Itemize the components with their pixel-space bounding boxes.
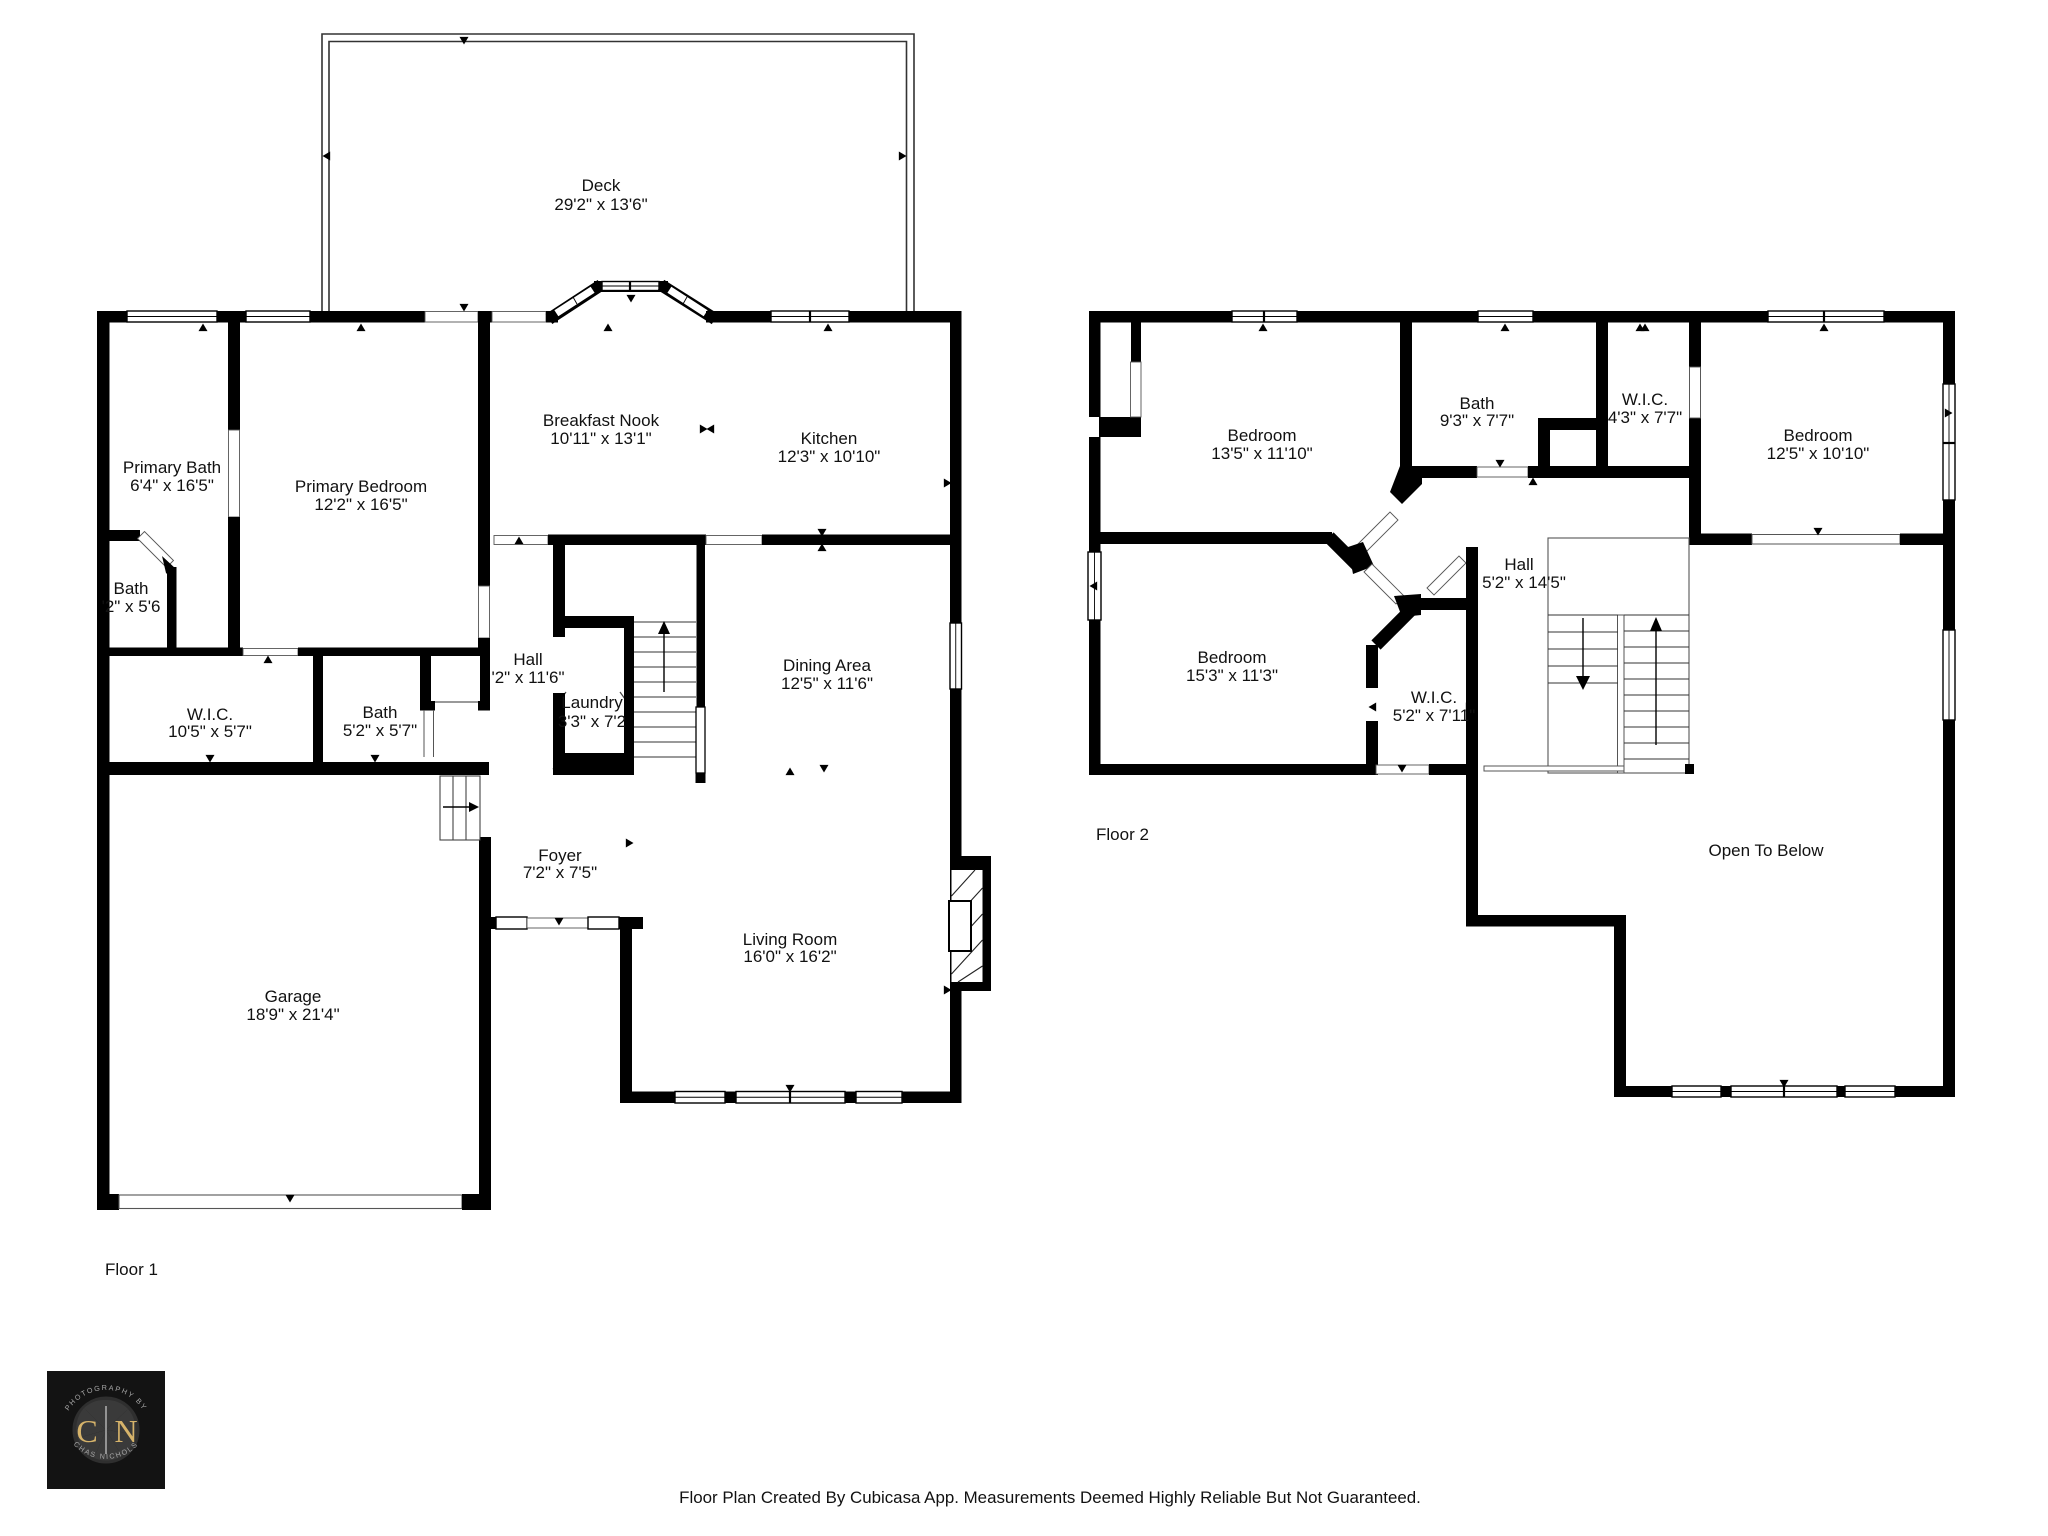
svg-text:W.I.C.: W.I.C. — [1622, 390, 1668, 409]
svg-text:Primary Bath: Primary Bath — [123, 458, 221, 477]
svg-text:12'2" x 16'5": 12'2" x 16'5" — [314, 495, 407, 514]
svg-text:Hall: Hall — [513, 650, 542, 669]
svg-text:4'3" x 7'7": 4'3" x 7'7" — [1608, 408, 1682, 427]
svg-text:9'3" x 7'7": 9'3" x 7'7" — [1440, 411, 1514, 430]
svg-text:Hall: Hall — [1504, 555, 1533, 574]
svg-text:Floor Plan Created By Cubicasa: Floor Plan Created By Cubicasa App. Meas… — [679, 1488, 1421, 1507]
svg-text:Bath: Bath — [363, 703, 398, 722]
svg-text:7'2" x 7'5": 7'2" x 7'5" — [523, 863, 597, 882]
svg-text:5'2" x 5'7": 5'2" x 5'7" — [343, 721, 417, 740]
svg-text:Bedroom: Bedroom — [1228, 426, 1297, 445]
svg-text:Floor 1: Floor 1 — [105, 1260, 158, 1279]
svg-text:Dining Area: Dining Area — [783, 656, 871, 675]
svg-text:12'5" x 11'6": 12'5" x 11'6" — [781, 674, 873, 693]
svg-text:Kitchen: Kitchen — [801, 429, 858, 448]
svg-text:10'11" x 13'1": 10'11" x 13'1" — [550, 429, 651, 448]
svg-text:13'5" x 11'10": 13'5" x 11'10" — [1211, 444, 1312, 463]
svg-text:Laundry: Laundry — [561, 693, 623, 712]
svg-text:10'5" x 5'7": 10'5" x 5'7" — [168, 722, 252, 741]
svg-text:12'3" x 10'10": 12'3" x 10'10" — [778, 447, 881, 466]
svg-text:Bedroom: Bedroom — [1784, 426, 1853, 445]
svg-text:Deck: Deck — [582, 176, 621, 195]
svg-text:5'2" x 7'11": 5'2" x 7'11" — [1393, 706, 1476, 725]
svg-text:Bath: Bath — [114, 579, 149, 598]
svg-text:Open To Below: Open To Below — [1709, 841, 1825, 860]
svg-text:Garage: Garage — [265, 987, 322, 1006]
svg-text:Breakfast Nook: Breakfast Nook — [543, 411, 660, 430]
svg-text:5'2" x 14'5": 5'2" x 14'5" — [1482, 573, 1566, 592]
svg-text:29'2" x 13'6": 29'2" x 13'6" — [554, 195, 647, 214]
svg-text:'2" x 5'6: '2" x 5'6 — [102, 597, 161, 616]
svg-text:'2" x 11'6": '2" x 11'6" — [491, 668, 564, 687]
svg-text:16'0" x 16'2": 16'0" x 16'2" — [743, 947, 836, 966]
svg-text:Bedroom: Bedroom — [1198, 648, 1267, 667]
svg-text:15'3" x 11'3": 15'3" x 11'3" — [1186, 666, 1278, 685]
svg-text:6'4" x 16'5": 6'4" x 16'5" — [130, 476, 214, 495]
svg-text:3'3" x 7'2: 3'3" x 7'2 — [558, 712, 626, 731]
svg-text:Floor 2: Floor 2 — [1096, 825, 1149, 844]
svg-text:12'5" x 10'10": 12'5" x 10'10" — [1767, 444, 1870, 463]
svg-text:W.I.C.: W.I.C. — [1411, 688, 1457, 707]
svg-text:Primary Bedroom: Primary Bedroom — [295, 477, 427, 496]
svg-text:18'9" x 21'4": 18'9" x 21'4" — [246, 1005, 339, 1024]
